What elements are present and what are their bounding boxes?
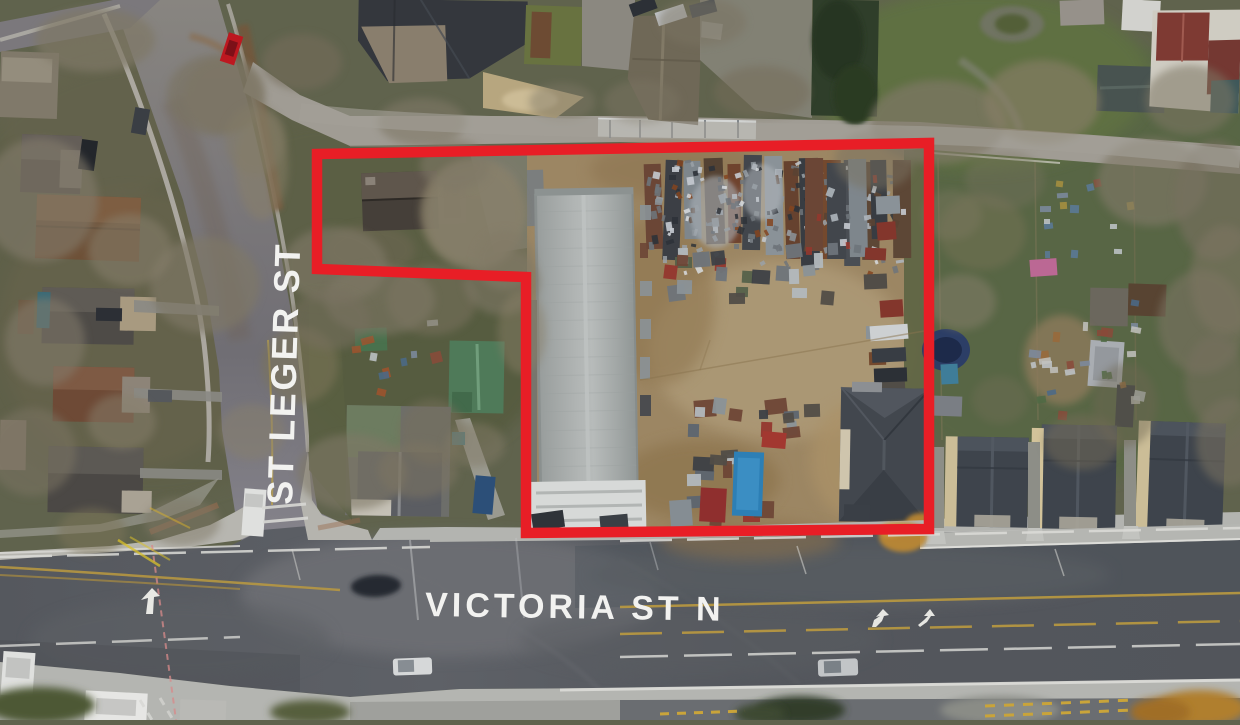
svg-text:ST LEGER ST: ST LEGER ST: [259, 242, 308, 506]
svg-text:VICTORIA ST N: VICTORIA ST N: [425, 586, 725, 629]
